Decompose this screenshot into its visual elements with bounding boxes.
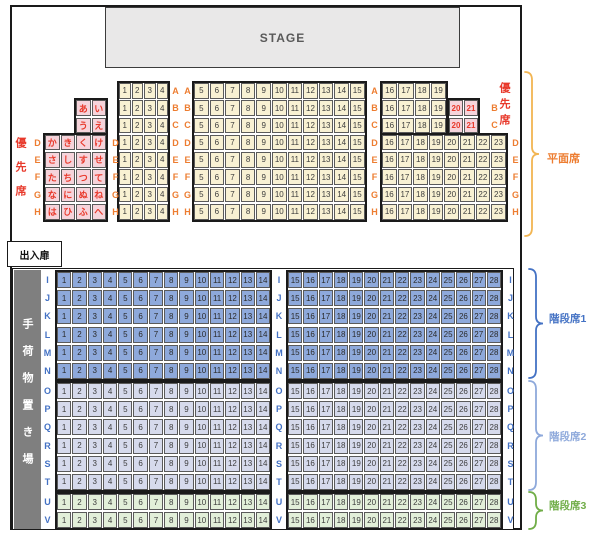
seat: 11 bbox=[210, 494, 224, 510]
seat: 7 bbox=[225, 100, 240, 116]
seat: 12 bbox=[225, 456, 239, 472]
seat: 23 bbox=[491, 187, 506, 203]
seat: 10 bbox=[195, 383, 209, 399]
seat: 28 bbox=[487, 327, 501, 343]
seat: 2 bbox=[72, 272, 86, 288]
seat: 14 bbox=[334, 169, 349, 185]
row-label: H bbox=[109, 204, 122, 220]
seat: 11 bbox=[210, 474, 224, 490]
seat: 20 bbox=[364, 401, 378, 417]
seat: 7 bbox=[225, 152, 240, 168]
row-label: B bbox=[488, 100, 501, 116]
seat: え bbox=[92, 118, 107, 134]
seat: 10 bbox=[272, 135, 287, 151]
seat: 26 bbox=[456, 438, 470, 454]
seat: 9 bbox=[179, 438, 193, 454]
stairs2-legend: 階段席2 bbox=[549, 429, 586, 444]
seat: 21 bbox=[380, 419, 394, 435]
seat: 3 bbox=[144, 152, 156, 168]
seat: 16 bbox=[303, 290, 317, 306]
seat: 21 bbox=[460, 187, 475, 203]
seat: 16 bbox=[382, 100, 397, 116]
row-label: R bbox=[41, 438, 54, 454]
seat: 21 bbox=[380, 383, 394, 399]
seat: 26 bbox=[456, 456, 470, 472]
seat: た bbox=[45, 169, 60, 185]
row-label: Q bbox=[504, 419, 517, 435]
seat: 17 bbox=[319, 272, 333, 288]
row-label: M bbox=[273, 345, 286, 361]
stairs-block-2-right: 1516171819202122232425262728151617181920… bbox=[286, 381, 503, 492]
seat: 13 bbox=[241, 474, 255, 490]
seat: 14 bbox=[334, 118, 349, 134]
row-label: C bbox=[368, 118, 381, 134]
seat: 8 bbox=[164, 438, 178, 454]
seat: 10 bbox=[195, 345, 209, 361]
seat: 2 bbox=[72, 345, 86, 361]
seat: 21 bbox=[380, 272, 394, 288]
seat: 22 bbox=[395, 272, 409, 288]
stairs-block-2-left: 1234567891011121314123456789101112131412… bbox=[55, 381, 272, 492]
seat: 2 bbox=[72, 308, 86, 324]
seat: 25 bbox=[441, 438, 455, 454]
seat: ひ bbox=[61, 204, 76, 220]
seat: 18 bbox=[334, 419, 348, 435]
seat: 3 bbox=[144, 187, 156, 203]
seat: 15 bbox=[350, 204, 365, 220]
seat: 14 bbox=[256, 494, 270, 510]
seat: 10 bbox=[195, 419, 209, 435]
seat: ち bbox=[61, 169, 76, 185]
row-label: G bbox=[368, 187, 381, 203]
seat: 22 bbox=[476, 135, 491, 151]
row-label: P bbox=[504, 401, 517, 417]
seat: 11 bbox=[210, 383, 224, 399]
seat: 13 bbox=[319, 169, 334, 185]
seat: 7 bbox=[149, 327, 163, 343]
seat: 15 bbox=[350, 83, 365, 99]
seat: 24 bbox=[426, 327, 440, 343]
seat: 20 bbox=[449, 118, 463, 134]
seat: 17 bbox=[319, 474, 333, 490]
seat: 3 bbox=[88, 345, 102, 361]
seat: 26 bbox=[456, 474, 470, 490]
seat: 27 bbox=[472, 438, 486, 454]
seat: 2 bbox=[72, 474, 86, 490]
row-label: V bbox=[41, 512, 54, 528]
seat: 8 bbox=[164, 383, 178, 399]
seat: 9 bbox=[256, 83, 271, 99]
row-label: H bbox=[368, 204, 381, 220]
seat: 4 bbox=[157, 204, 169, 220]
seat: く bbox=[76, 135, 91, 151]
row-label: F bbox=[368, 170, 381, 186]
seat: 8 bbox=[241, 187, 256, 203]
seat: 9 bbox=[179, 272, 193, 288]
seat: 7 bbox=[149, 290, 163, 306]
seat: 5 bbox=[194, 83, 209, 99]
seat: 9 bbox=[179, 327, 193, 343]
stairs-block-3-right: 1516171819202122232425262728151617181920… bbox=[286, 492, 503, 530]
seat: 16 bbox=[303, 438, 317, 454]
seat: 14 bbox=[256, 512, 270, 528]
seat: 12 bbox=[303, 204, 318, 220]
seat: 8 bbox=[241, 100, 256, 116]
seat: 18 bbox=[334, 363, 348, 379]
row-label: H bbox=[181, 204, 194, 220]
seat: 28 bbox=[487, 494, 501, 510]
seat: 22 bbox=[395, 290, 409, 306]
seat: 6 bbox=[210, 152, 225, 168]
seat: 20 bbox=[444, 204, 459, 220]
seat: 7 bbox=[225, 187, 240, 203]
row-label: E bbox=[368, 152, 381, 168]
seat: 13 bbox=[319, 100, 334, 116]
seat: 15 bbox=[288, 272, 302, 288]
seat: へ bbox=[92, 204, 107, 220]
seat: 19 bbox=[349, 419, 363, 435]
seat: 19 bbox=[349, 345, 363, 361]
seat: 27 bbox=[472, 456, 486, 472]
row-label: G bbox=[181, 187, 194, 203]
seat: 25 bbox=[441, 363, 455, 379]
seat: 19 bbox=[349, 290, 363, 306]
seat: 6 bbox=[133, 327, 147, 343]
row-label: S bbox=[41, 456, 54, 472]
row-label: S bbox=[273, 456, 286, 472]
seat: 12 bbox=[225, 345, 239, 361]
seat: 14 bbox=[334, 204, 349, 220]
row-label: T bbox=[41, 474, 54, 490]
seat: 22 bbox=[476, 187, 491, 203]
stage-label: STAGE bbox=[260, 31, 305, 45]
row-label: Q bbox=[273, 419, 286, 435]
row-label: I bbox=[41, 272, 54, 288]
seat: 23 bbox=[491, 169, 506, 185]
seat: 2 bbox=[72, 512, 86, 528]
seat: 2 bbox=[132, 118, 144, 134]
seat: 28 bbox=[487, 456, 501, 472]
seat: 14 bbox=[256, 363, 270, 379]
seat: ぬ bbox=[76, 187, 91, 203]
seat: 13 bbox=[319, 152, 334, 168]
seat: 9 bbox=[256, 152, 271, 168]
seat: 20 bbox=[364, 383, 378, 399]
seat: 24 bbox=[426, 419, 440, 435]
seat: 1 bbox=[57, 401, 71, 417]
seat: 22 bbox=[395, 345, 409, 361]
seat: 12 bbox=[225, 474, 239, 490]
stairs3-legend: 階段席3 bbox=[549, 498, 586, 513]
seat: 17 bbox=[319, 401, 333, 417]
seat: 14 bbox=[334, 152, 349, 168]
seat: 21 bbox=[380, 327, 394, 343]
seat: 23 bbox=[410, 401, 424, 417]
seat: 18 bbox=[413, 152, 428, 168]
seat: 11 bbox=[288, 187, 303, 203]
seat: 12 bbox=[303, 100, 318, 116]
seat: 8 bbox=[164, 272, 178, 288]
seat: 8 bbox=[164, 308, 178, 324]
seat: 10 bbox=[195, 363, 209, 379]
seat: 2 bbox=[72, 419, 86, 435]
row-label: J bbox=[273, 290, 286, 306]
seat: 1 bbox=[57, 327, 71, 343]
seat: 14 bbox=[334, 100, 349, 116]
seat: 1 bbox=[57, 345, 71, 361]
stairs-block-1-left: 1234567891011121314123456789101112131412… bbox=[55, 270, 272, 381]
seat: 23 bbox=[410, 363, 424, 379]
seat: 15 bbox=[350, 152, 365, 168]
seat: 12 bbox=[225, 272, 239, 288]
seat: 1 bbox=[57, 494, 71, 510]
seat: 20 bbox=[444, 135, 459, 151]
seat: 15 bbox=[350, 187, 365, 203]
seat: 2 bbox=[72, 383, 86, 399]
seat: 20 bbox=[364, 290, 378, 306]
seat: 3 bbox=[88, 512, 102, 528]
seat: 1 bbox=[57, 363, 71, 379]
seat: 12 bbox=[225, 290, 239, 306]
seat: 9 bbox=[179, 456, 193, 472]
seat: 3 bbox=[144, 100, 156, 116]
seat: 15 bbox=[350, 135, 365, 151]
seat: 12 bbox=[303, 83, 318, 99]
stairs-block-3-left: 12345678910111213141234567891011121314 bbox=[55, 492, 272, 530]
seat: 11 bbox=[288, 118, 303, 134]
row-label: S bbox=[504, 456, 517, 472]
seat: 15 bbox=[288, 456, 302, 472]
seat: 18 bbox=[334, 512, 348, 528]
seat: 26 bbox=[456, 494, 470, 510]
flat-section-legend: 平面席 bbox=[547, 150, 580, 166]
seat: 25 bbox=[441, 308, 455, 324]
row-label: I bbox=[273, 272, 286, 288]
seat: 28 bbox=[487, 474, 501, 490]
seat: 19 bbox=[349, 456, 363, 472]
seat: 22 bbox=[395, 456, 409, 472]
seat: 4 bbox=[103, 308, 117, 324]
seat: 8 bbox=[164, 290, 178, 306]
seat: 13 bbox=[241, 383, 255, 399]
row-label: K bbox=[504, 308, 517, 324]
seat: 17 bbox=[398, 135, 413, 151]
seat: 6 bbox=[210, 169, 225, 185]
seat: 26 bbox=[456, 512, 470, 528]
seat: 19 bbox=[349, 474, 363, 490]
seat: 18 bbox=[415, 100, 430, 116]
seat: 12 bbox=[225, 494, 239, 510]
seat: 5 bbox=[194, 118, 209, 134]
seat: 9 bbox=[256, 187, 271, 203]
seat: 8 bbox=[241, 152, 256, 168]
seat: 27 bbox=[472, 345, 486, 361]
seat: 11 bbox=[210, 401, 224, 417]
seat: 2 bbox=[132, 83, 144, 99]
seat: つ bbox=[76, 169, 91, 185]
seat: 21 bbox=[460, 169, 475, 185]
seat: 8 bbox=[164, 512, 178, 528]
seat: 20 bbox=[364, 474, 378, 490]
seat: 24 bbox=[426, 438, 440, 454]
seat: 6 bbox=[210, 204, 225, 220]
seat: 28 bbox=[487, 272, 501, 288]
seat: 6 bbox=[210, 100, 225, 116]
seat: 24 bbox=[426, 272, 440, 288]
seat: 19 bbox=[349, 383, 363, 399]
seat: 16 bbox=[303, 272, 317, 288]
seat: 6 bbox=[210, 135, 225, 151]
seat: 8 bbox=[164, 345, 178, 361]
seat: 8 bbox=[164, 419, 178, 435]
row-label: F bbox=[109, 170, 122, 186]
seat: 12 bbox=[225, 383, 239, 399]
row-label: B bbox=[181, 100, 194, 116]
seat: 17 bbox=[398, 83, 413, 99]
seat: 1 bbox=[119, 83, 131, 99]
seat: 11 bbox=[210, 272, 224, 288]
row-label: M bbox=[504, 345, 517, 361]
seat: 15 bbox=[288, 383, 302, 399]
seat: 16 bbox=[382, 118, 397, 134]
seat: 17 bbox=[398, 187, 413, 203]
seat: 9 bbox=[179, 494, 193, 510]
row-label: U bbox=[504, 494, 517, 510]
seat: 24 bbox=[426, 345, 440, 361]
seat: 25 bbox=[441, 290, 455, 306]
seat: 17 bbox=[319, 327, 333, 343]
seat: 4 bbox=[103, 474, 117, 490]
flat-block-1-4: 12341234123412341234123412341234 bbox=[117, 81, 170, 222]
seat: 7 bbox=[225, 135, 240, 151]
seat: 5 bbox=[194, 152, 209, 168]
seat: 21 bbox=[380, 363, 394, 379]
luggage-area: 手荷物置き場 bbox=[14, 270, 41, 529]
seat: 5 bbox=[118, 512, 132, 528]
seat: 18 bbox=[334, 272, 348, 288]
seat: 5 bbox=[194, 204, 209, 220]
seat: 21 bbox=[380, 456, 394, 472]
row-label: D bbox=[109, 135, 122, 151]
seat: 11 bbox=[210, 363, 224, 379]
seat: す bbox=[76, 152, 91, 168]
seat: て bbox=[92, 169, 107, 185]
priority-seat-block-main: かきくけさしすせたちつてなにぬねはひふへ bbox=[43, 133, 108, 222]
seat: 24 bbox=[426, 308, 440, 324]
seat: さ bbox=[45, 152, 60, 168]
seat: 16 bbox=[382, 135, 397, 151]
seat: 11 bbox=[288, 152, 303, 168]
seat: 20 bbox=[364, 363, 378, 379]
seat: 20 bbox=[364, 512, 378, 528]
seat: 6 bbox=[133, 438, 147, 454]
seat: 22 bbox=[395, 383, 409, 399]
seat: 10 bbox=[195, 512, 209, 528]
seat: 28 bbox=[487, 383, 501, 399]
seat: 1 bbox=[57, 308, 71, 324]
seat: 16 bbox=[303, 456, 317, 472]
seat: 13 bbox=[319, 83, 334, 99]
seat: 13 bbox=[241, 308, 255, 324]
seat: 7 bbox=[149, 494, 163, 510]
seat: 4 bbox=[103, 383, 117, 399]
flat-section-brace bbox=[522, 71, 542, 237]
seat: 16 bbox=[382, 152, 397, 168]
seat: 27 bbox=[472, 512, 486, 528]
seat: 5 bbox=[118, 438, 132, 454]
seat: 10 bbox=[195, 456, 209, 472]
row-label: D bbox=[181, 135, 194, 151]
seat: 9 bbox=[179, 474, 193, 490]
row-label: R bbox=[273, 438, 286, 454]
seat: 5 bbox=[118, 401, 132, 417]
seat: 8 bbox=[164, 327, 178, 343]
stage: STAGE bbox=[105, 7, 460, 68]
seat: 10 bbox=[195, 290, 209, 306]
seat: 18 bbox=[415, 83, 430, 99]
seat: 4 bbox=[103, 456, 117, 472]
seat: 11 bbox=[210, 456, 224, 472]
seat: 16 bbox=[303, 383, 317, 399]
seat: い bbox=[92, 100, 107, 116]
seat: な bbox=[45, 187, 60, 203]
seat: 6 bbox=[133, 456, 147, 472]
seat: 14 bbox=[334, 187, 349, 203]
seat: 2 bbox=[132, 169, 144, 185]
seat: 2 bbox=[132, 152, 144, 168]
stairs-block-1-right: 1516171819202122232425262728151617181920… bbox=[286, 270, 503, 381]
seat: 11 bbox=[210, 290, 224, 306]
row-label: J bbox=[41, 290, 54, 306]
seat: 13 bbox=[319, 204, 334, 220]
seat: 16 bbox=[382, 83, 397, 99]
seat: 18 bbox=[334, 345, 348, 361]
seat: 21 bbox=[380, 290, 394, 306]
seat: 22 bbox=[395, 327, 409, 343]
seat: 15 bbox=[288, 308, 302, 324]
row-label: D bbox=[368, 135, 381, 151]
seat: 22 bbox=[395, 308, 409, 324]
seat: 27 bbox=[472, 474, 486, 490]
seat: 21 bbox=[380, 308, 394, 324]
seat: 26 bbox=[456, 401, 470, 417]
seat: 3 bbox=[88, 419, 102, 435]
seat: 3 bbox=[88, 438, 102, 454]
seat: 19 bbox=[431, 83, 446, 99]
seat: 8 bbox=[164, 363, 178, 379]
seat: 11 bbox=[210, 308, 224, 324]
seat: 26 bbox=[456, 363, 470, 379]
row-label: K bbox=[41, 308, 54, 324]
seat: き bbox=[61, 135, 76, 151]
seat: け bbox=[92, 135, 107, 151]
seat: 19 bbox=[349, 327, 363, 343]
seat: ふ bbox=[76, 204, 91, 220]
entrance-door-label: 出入扉 bbox=[20, 247, 50, 262]
seat: 14 bbox=[256, 456, 270, 472]
seat: 22 bbox=[395, 363, 409, 379]
seat: 17 bbox=[319, 383, 333, 399]
seat: 23 bbox=[410, 494, 424, 510]
seat: 7 bbox=[149, 363, 163, 379]
flat-block-right-abc: 161718191617181916171819 bbox=[380, 81, 448, 135]
seat: 25 bbox=[441, 383, 455, 399]
seat: 26 bbox=[456, 345, 470, 361]
seat: 17 bbox=[319, 308, 333, 324]
seat: 17 bbox=[319, 363, 333, 379]
seat: 11 bbox=[288, 204, 303, 220]
seat: に bbox=[61, 187, 76, 203]
